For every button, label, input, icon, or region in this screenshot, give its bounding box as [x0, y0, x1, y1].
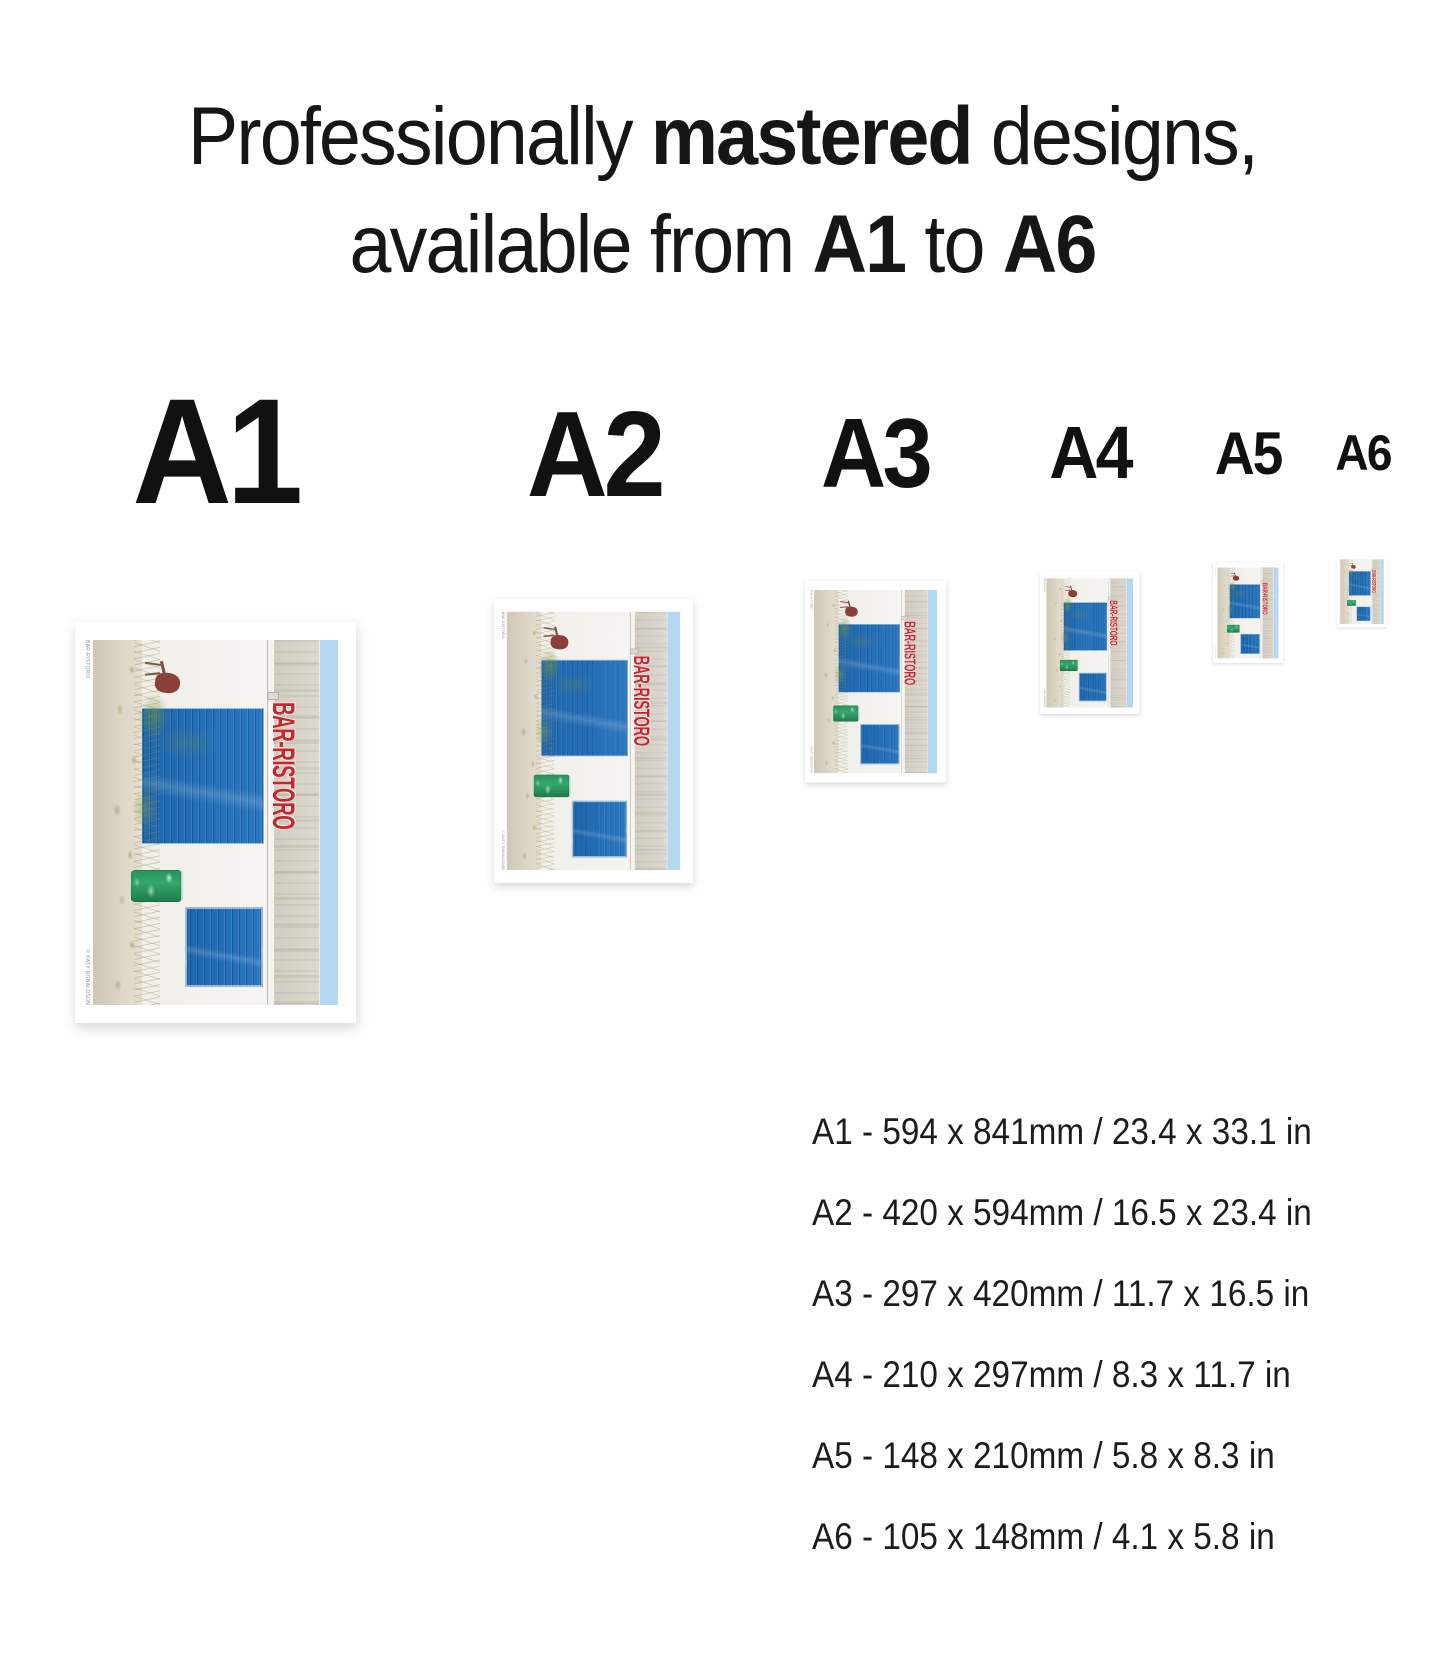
size-spec-a3: A3 - 297 x 420mm / 11.7 x 16.5 in [812, 1274, 1309, 1315]
poster: BAR-RISTORO BAR-RISTORO © KATY DONALDSON [1337, 556, 1387, 627]
chair-back [1068, 590, 1078, 598]
title-text: designs, [972, 91, 1257, 182]
plant [1060, 631, 1069, 646]
chair-leg [1065, 586, 1071, 588]
bar-ristoro-sign-text: BAR-RISTORO [900, 621, 918, 685]
plant [834, 664, 847, 685]
size-spec-a6: A6 - 105 x 148mm / 4.1 x 5.8 in [812, 1517, 1275, 1558]
poster-photo: BAR-RISTORO [507, 612, 680, 870]
roller-door-small [860, 724, 899, 764]
poster-a6: BAR-RISTORO BAR-RISTORO © KATY DONALDSON [1337, 556, 1445, 957]
poster-caption-credit: © KATY DONALDSON [1215, 645, 1216, 659]
poster: BAR-RISTORO BAR-RISTORO © KATY DONALDSON [75, 622, 356, 1023]
poster-a2: BAR-RISTORO BAR-RISTORO © KATY DONALDSON [494, 599, 775, 1000]
bar-ristoro-sign-text: BAR-RISTORO [628, 656, 654, 746]
sky-strip [1127, 578, 1133, 707]
poster-design: BAR-RISTORO BAR-RISTORO © KATY DONALDSON [1213, 563, 1283, 663]
plant [1233, 589, 1248, 597]
chair-leg [840, 601, 849, 603]
title-line-2: available from A1 to A6 [58, 204, 1387, 286]
size-spec-a4: A4 - 210 x 297mm / 8.3 x 11.7 in [812, 1355, 1291, 1396]
bar-ristoro-sign: BAR-RISTORO [629, 653, 652, 749]
chair [1230, 572, 1239, 580]
poster: BAR-RISTORO BAR-RISTORO © KATY DONALDSON [1213, 563, 1283, 663]
bar-ristoro-sign-text: BAR-RISTORO [1107, 600, 1120, 645]
poster-photo: BAR-RISTORO [814, 590, 937, 773]
sky-strip [928, 590, 937, 773]
title-text: to [905, 199, 1002, 290]
plant [551, 673, 595, 697]
size-spec-a1: A1 - 594 x 841mm / 23.4 x 33.1 in [812, 1112, 1312, 1153]
roller-door-small [185, 907, 263, 987]
roller-door-small [1079, 673, 1107, 701]
poster-a1: BAR-RISTORO BAR-RISTORO © KATY DONALDSON [75, 622, 356, 1023]
size-label-a6: A6 [1335, 428, 1390, 478]
poster-photo: BAR-RISTORO [1217, 567, 1278, 658]
poster-design: BAR-RISTORO BAR-RISTORO © KATY DONALDSON [805, 581, 946, 782]
poster-caption-credit: © KATY DONALDSON [500, 831, 504, 870]
size-label-a4: A4 [1049, 416, 1131, 490]
green-barrel [1347, 600, 1356, 606]
chair [543, 625, 568, 649]
roller-door-small [1240, 634, 1259, 654]
plant [1069, 609, 1091, 621]
poster-caption-credit: © KATY DONALDSON [810, 745, 813, 773]
title-text-bold: A6 [1003, 199, 1096, 290]
poster-design: BAR-RISTORO BAR-RISTORO © KATY DONALDSON [75, 622, 356, 1023]
title-text: Professionally [188, 91, 651, 182]
poster-design: BAR-RISTORO BAR-RISTORO © KATY DONALDSON [494, 599, 693, 883]
poster-caption-title: BAR-RISTORO [1215, 567, 1216, 576]
poster-caption-title: BAR-RISTORO [1043, 578, 1045, 591]
poster-caption-credit: © KATY DONALDSON [1043, 688, 1045, 708]
chair-back [550, 634, 569, 650]
poster-photo: BAR-RISTORO [1046, 578, 1133, 707]
chair [144, 659, 180, 693]
poster-caption-title: BAR-RISTORO [500, 612, 504, 639]
poster-caption-title: BAR-RISTORO [810, 590, 813, 609]
bar-ristoro-sign: BAR-RISTORO [901, 619, 917, 687]
chair-back [845, 606, 859, 617]
poster-photo: BAR-RISTORO [1340, 559, 1384, 624]
bar-ristoro-sign-text: BAR-RISTORO [1371, 570, 1377, 593]
sky-strip [320, 640, 338, 1005]
bar-ristoro-sign: BAR-RISTORO [1108, 599, 1119, 647]
page-title: Professionally mastered designs, availab… [0, 96, 1445, 286]
green-barrel [1060, 660, 1078, 671]
bar-ristoro-sign-text: BAR-RISTORO [264, 702, 300, 829]
poster-caption-credit: © KATY DONALDSON [1339, 614, 1340, 624]
size-spec-a2: A2 - 420 x 594mm / 16.5 x 23.4 in [812, 1193, 1312, 1234]
roller-door-small [572, 801, 627, 858]
chair-leg [1230, 573, 1235, 574]
size-spec-a5: A5 - 148 x 210mm / 5.8 x 8.3 in [812, 1436, 1275, 1477]
chair [840, 600, 858, 617]
title-line-1: Professionally mastered designs, [58, 96, 1387, 178]
chair [1349, 563, 1355, 569]
plant [1347, 586, 1352, 593]
poster: BAR-RISTORO BAR-RISTORO © KATY DONALDSON [494, 599, 693, 883]
plant [534, 717, 552, 747]
chair-leg [1349, 563, 1352, 564]
poster-photo: BAR-RISTORO [93, 640, 338, 1005]
size-label-a5: A5 [1215, 424, 1281, 484]
poster: BAR-RISTORO BAR-RISTORO © KATY DONALDSON [1040, 572, 1139, 714]
size-label-a3: A3 [821, 404, 929, 502]
sky-strip [667, 612, 680, 870]
poster-design: BAR-RISTORO BAR-RISTORO © KATY DONALDSON [1040, 572, 1139, 714]
plant [846, 633, 877, 650]
green-barrel [1227, 625, 1240, 633]
green-barrel [534, 775, 571, 798]
plant [156, 726, 218, 760]
plant [1351, 575, 1362, 581]
size-label-a2: A2 [527, 393, 662, 515]
title-text-bold: mastered [651, 91, 972, 182]
roller-door-small [1357, 607, 1371, 621]
bar-ristoro-sign-text: BAR-RISTORO [1260, 583, 1269, 615]
bar-ristoro-sign: BAR-RISTORO [1261, 582, 1269, 616]
chair [1064, 585, 1077, 597]
size-label-a1: A1 [132, 376, 297, 526]
poster-caption-credit: © KATY DONALDSON [84, 949, 89, 1005]
plant [1227, 604, 1233, 614]
chair-back [1233, 575, 1240, 581]
poster: BAR-RISTORO BAR-RISTORO © KATY DONALDSON [805, 581, 946, 782]
title-text: available from [349, 199, 812, 290]
sky-strip [1274, 567, 1278, 658]
green-barrel [131, 870, 183, 902]
sky-strip [1381, 559, 1384, 624]
poster-caption-title: BAR-RISTORO [84, 640, 89, 678]
green-barrel [833, 705, 859, 721]
poster-design: BAR-RISTORO BAR-RISTORO © KATY DONALDSON [1337, 556, 1387, 627]
chair-back [154, 672, 181, 695]
title-text-bold: A1 [812, 199, 905, 290]
plant [132, 788, 158, 830]
poster-caption-title: BAR-RISTORO [1339, 559, 1340, 566]
bar-ristoro-sign: BAR-RISTORO [1371, 570, 1377, 594]
bar-ristoro-sign: BAR-RISTORO [266, 698, 298, 834]
